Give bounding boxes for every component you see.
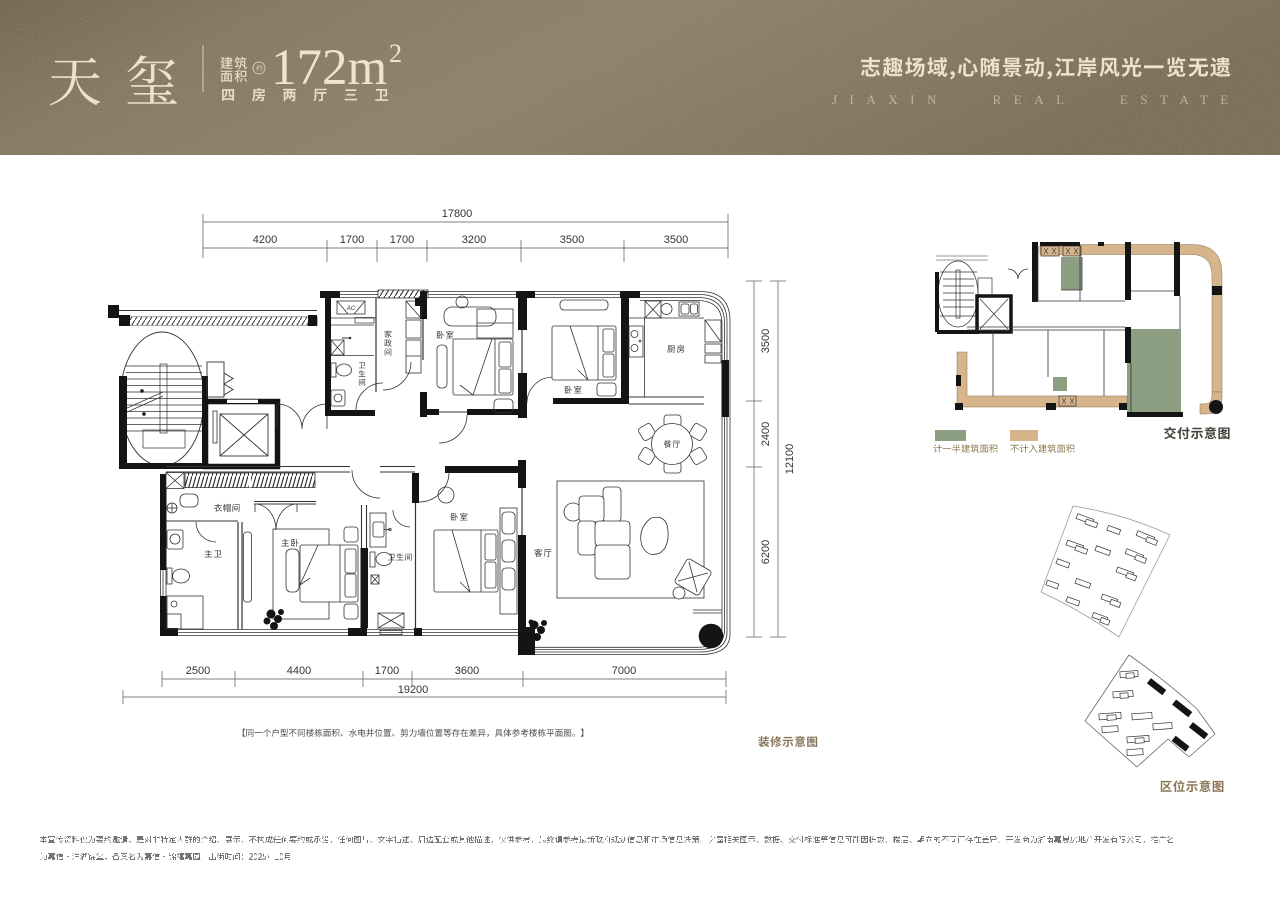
svg-text:1700: 1700 bbox=[340, 234, 364, 246]
svg-text:4400: 4400 bbox=[287, 665, 311, 677]
svg-text:3600: 3600 bbox=[455, 665, 479, 677]
svg-text:2400: 2400 bbox=[760, 422, 772, 446]
svg-text:12100: 12100 bbox=[784, 444, 796, 475]
svg-text:3200: 3200 bbox=[462, 234, 486, 246]
svg-text:1700: 1700 bbox=[375, 665, 399, 677]
svg-text:3500: 3500 bbox=[664, 234, 688, 246]
svg-text:2500: 2500 bbox=[186, 665, 210, 677]
svg-text:1700: 1700 bbox=[390, 234, 414, 246]
svg-text:AC: AC bbox=[346, 306, 356, 312]
svg-text:3500: 3500 bbox=[760, 329, 772, 353]
svg-text:JIAXIN REAL ESTATE: JIAXIN REAL ESTATE bbox=[832, 92, 1241, 107]
svg-text:7000: 7000 bbox=[612, 665, 636, 677]
svg-text:4200: 4200 bbox=[253, 234, 277, 246]
svg-text:2: 2 bbox=[389, 39, 402, 68]
svg-text:19200: 19200 bbox=[398, 684, 429, 696]
svg-text:3500: 3500 bbox=[560, 234, 584, 246]
svg-text:17800: 17800 bbox=[442, 208, 473, 220]
svg-text:6200: 6200 bbox=[760, 540, 772, 564]
svg-text:172m: 172m bbox=[271, 40, 387, 96]
